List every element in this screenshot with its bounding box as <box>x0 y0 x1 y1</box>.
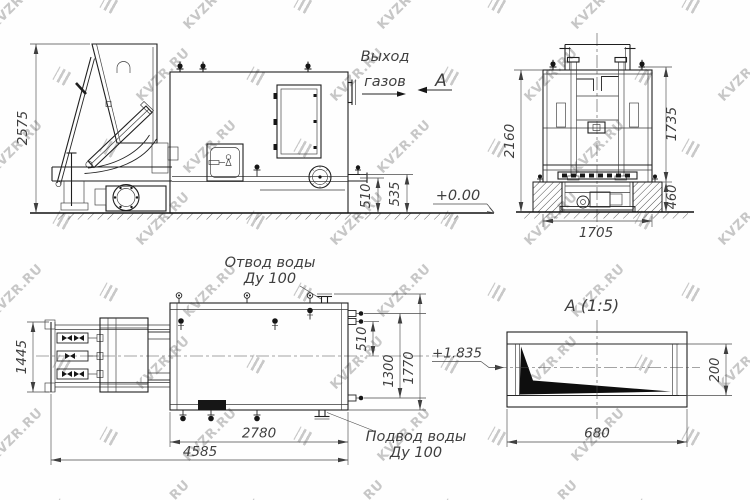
svg-text:+1.835: +1.835 <box>432 346 482 362</box>
bottom-edge-valves <box>180 410 261 421</box>
dim-510: 510 <box>359 184 374 209</box>
fuel-hopper <box>92 44 157 143</box>
dim-overall-height: 2575 <box>15 111 31 145</box>
grate-drive-section <box>198 400 226 410</box>
detail-view-a: А (1:5) 680 200 <box>494 296 732 447</box>
ground-hatch <box>56 214 458 220</box>
svg-text:А: А <box>434 71 447 91</box>
gas-outlet-label: Выход <box>361 49 410 65</box>
front-view: 2160 1735 460 1705 <box>502 33 694 241</box>
water-outlet-stub <box>317 294 332 303</box>
dim-510-plan: 510 <box>355 327 370 352</box>
view-a-marker: А <box>418 71 453 93</box>
fuel-feeder-plan <box>45 318 170 392</box>
drain-valve <box>254 165 261 177</box>
side-view: 2575 510 535 Выход газов А +0.00 <box>15 44 494 220</box>
dim-1735: 1735 <box>664 107 680 141</box>
water-inlet-label: Подвод воды <box>366 429 467 445</box>
plan-view: Отвод воды Ду 100 Подвод воды Ду 100 144… <box>14 255 504 465</box>
dim-680: 680 <box>584 426 610 442</box>
detail-title: А (1:5) <box>564 296 619 315</box>
elevation-mark-1835: +1.835 <box>432 346 504 371</box>
dim-200: 200 <box>708 358 723 383</box>
water-inlet-stub <box>315 410 330 419</box>
dim-2780: 2780 <box>242 426 276 442</box>
drawing-canvas: 2575 510 535 Выход газов А +0.00 <box>0 0 750 500</box>
top-edge-valves <box>176 293 313 303</box>
top-valve <box>200 62 207 72</box>
dim-2160: 2160 <box>502 124 518 158</box>
dim-1300: 1300 <box>382 354 397 387</box>
svg-text:+0.00: +0.00 <box>436 188 480 204</box>
dim-535: 535 <box>388 182 403 207</box>
gas-outlet-label2: газов <box>364 74 406 90</box>
baffle-wedge <box>520 347 672 395</box>
dim-1770: 1770 <box>402 351 417 384</box>
top-valve <box>305 62 312 72</box>
interior-valves <box>178 308 313 330</box>
water-inlet-label2: Ду 100 <box>389 445 442 461</box>
dim-460: 460 <box>665 185 680 210</box>
water-outlet-label2: Ду 100 <box>243 271 296 287</box>
hook-symbol <box>117 62 130 73</box>
top-valve <box>177 62 184 72</box>
dim-1445: 1445 <box>14 340 30 374</box>
side-drain-stub <box>348 165 367 183</box>
dim-4585: 4585 <box>183 444 217 460</box>
elevation-zero-mark: +0.00 <box>433 188 494 213</box>
water-outlet-label: Отвод воды <box>225 255 316 271</box>
drawing-sheet: KVZR.RUKVZR.RUKVZR.RUKVZR.RUKVZR.RUKVZR.… <box>0 0 750 500</box>
ash-pit-mechanism <box>560 182 635 212</box>
gas-outlet-flange <box>348 80 356 106</box>
boiler-body-side <box>170 62 367 213</box>
dim-1705: 1705 <box>579 225 613 241</box>
boiler-body-front <box>543 45 652 183</box>
boiler-body-plan <box>170 303 348 410</box>
ground-hatch <box>522 213 688 219</box>
